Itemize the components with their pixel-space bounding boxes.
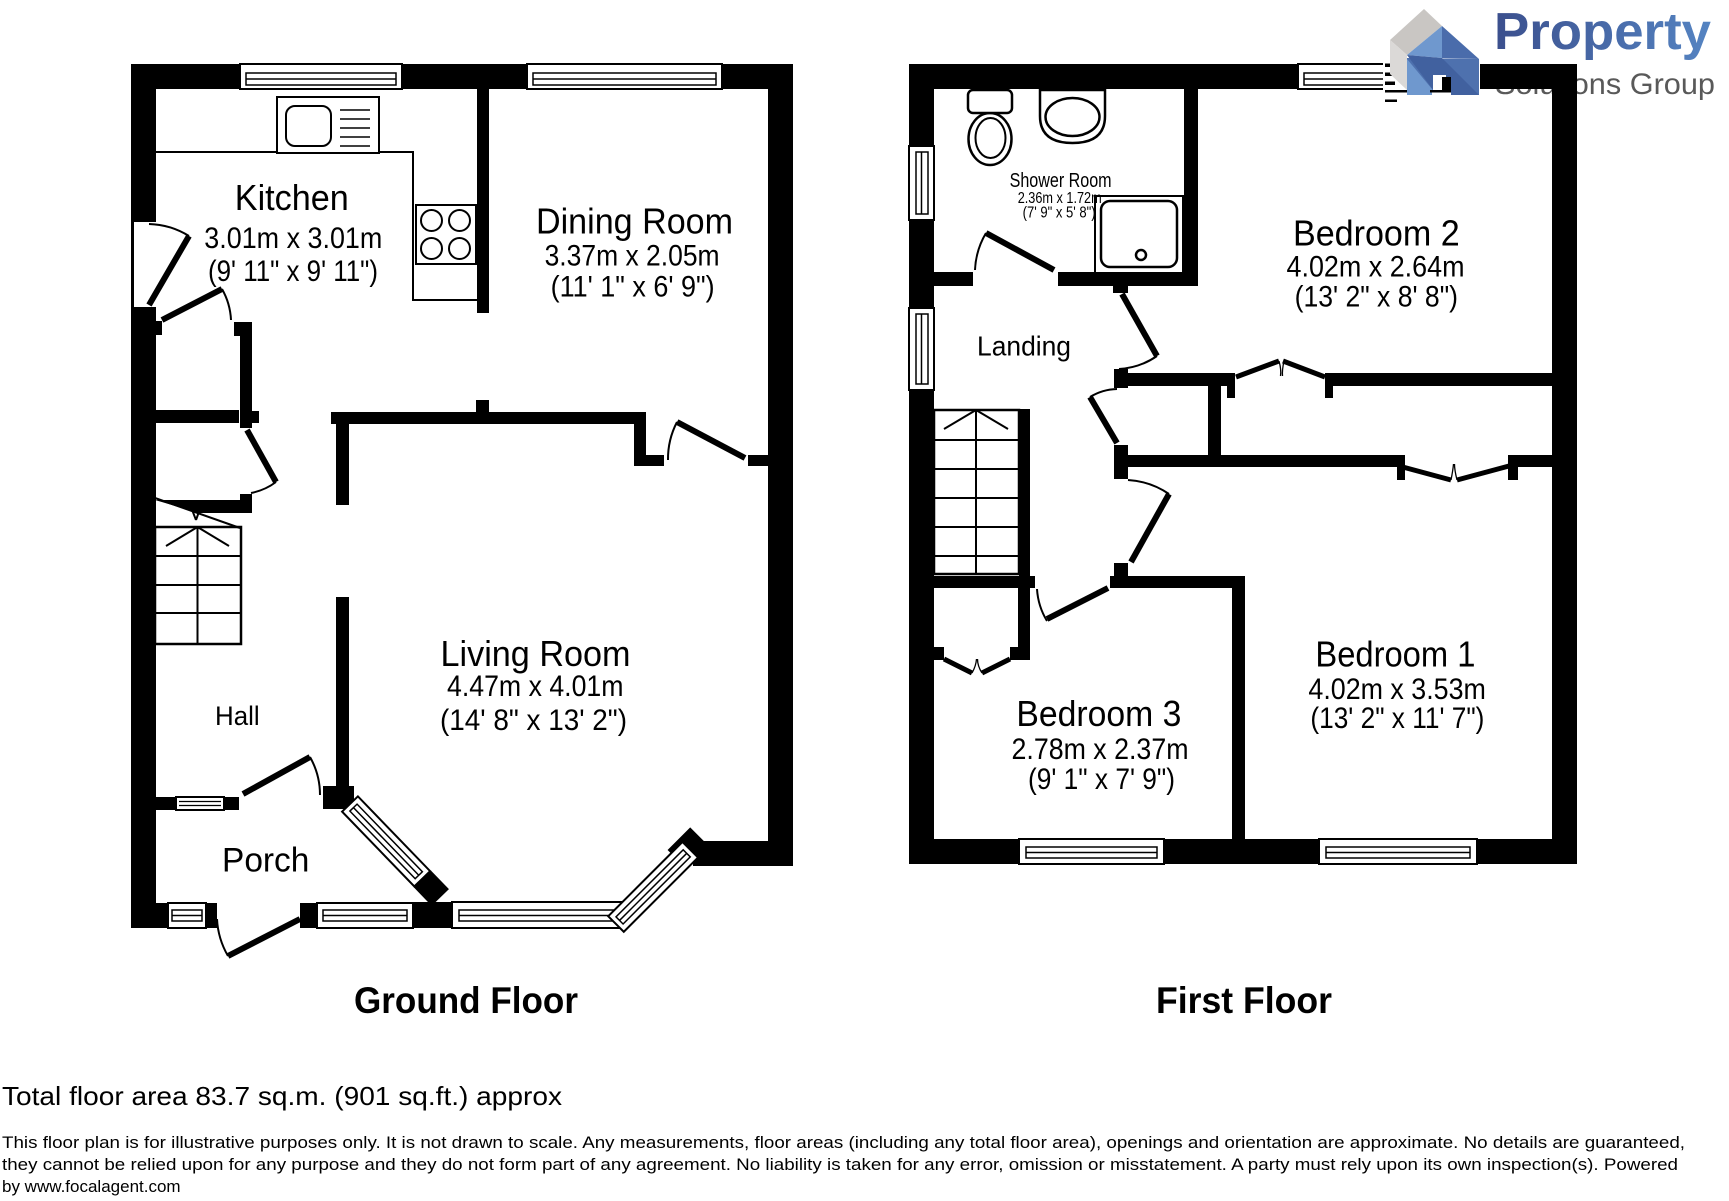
svg-text:Bedroom 2: Bedroom 2 (1293, 213, 1460, 254)
svg-text:First Floor: First Floor (1156, 980, 1332, 1021)
svg-text:Porch: Porch (222, 842, 309, 880)
svg-text:(13' 2" x 8' 8"): (13' 2" x 8' 8") (1295, 281, 1458, 314)
svg-text:(13' 2" x 11' 7"): (13' 2" x 11' 7") (1310, 702, 1484, 735)
svg-text:2.78m x 2.37m: 2.78m x 2.37m (1012, 733, 1189, 766)
svg-text:4.47m x 4.01m: 4.47m x 4.01m (447, 670, 624, 703)
svg-text:Property: Property (1494, 3, 1711, 61)
svg-text:Hall: Hall (215, 701, 260, 731)
svg-text:4.02m x 2.64m: 4.02m x 2.64m (1287, 251, 1465, 284)
svg-text:3.37m x 2.05m: 3.37m x 2.05m (545, 240, 720, 273)
svg-text:This floor plan is for illustr: This floor plan is for illustrative purp… (2, 1133, 1685, 1152)
svg-text:Dining Room: Dining Room (536, 201, 733, 242)
svg-text:3.01m x 3.01m: 3.01m x 3.01m (204, 222, 382, 255)
svg-text:Landing: Landing (977, 331, 1071, 362)
svg-text:(14' 8" x 13' 2"): (14' 8" x 13' 2") (440, 704, 627, 737)
svg-text:Ground Floor: Ground Floor (354, 980, 578, 1021)
svg-text:(11' 1" x 6' 9"): (11' 1" x 6' 9") (551, 271, 715, 304)
svg-text:Kitchen: Kitchen (235, 177, 349, 218)
svg-text:(7' 9" x 5' 8"): (7' 9" x 5' 8") (1023, 205, 1096, 222)
svg-text:Living Room: Living Room (441, 633, 631, 674)
svg-text:(9' 11" x 9' 11"): (9' 11" x 9' 11") (208, 255, 378, 288)
svg-text:Total floor area 83.7 sq.m. (9: Total floor area 83.7 sq.m. (901 sq.ft.)… (2, 1081, 562, 1111)
svg-text:Bedroom 1: Bedroom 1 (1315, 634, 1475, 675)
svg-text:they cannot be relied upon for: they cannot be relied upon for any purpo… (2, 1155, 1678, 1174)
svg-text:Shower Room: Shower Room (1010, 170, 1112, 192)
svg-text:by www.focalagent.com: by www.focalagent.com (2, 1177, 181, 1196)
svg-text:Bedroom 3: Bedroom 3 (1016, 693, 1181, 734)
svg-text:(9' 1" x 7' 9"): (9' 1" x 7' 9") (1028, 763, 1175, 796)
